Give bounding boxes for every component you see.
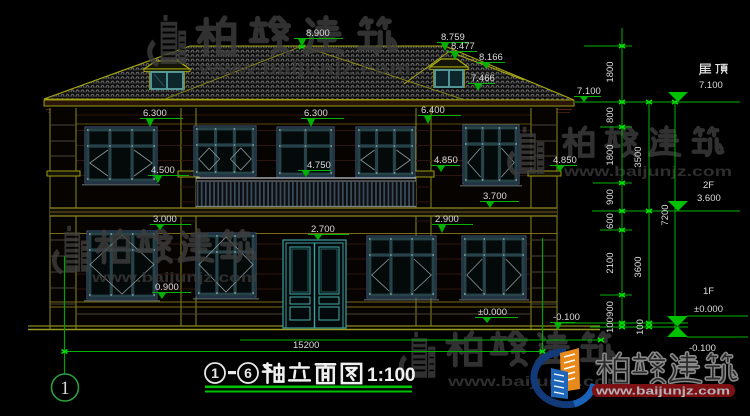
svg-text:8.477: 8.477 <box>451 41 475 52</box>
svg-text:2.700: 2.700 <box>311 224 335 235</box>
svg-text:900: 900 <box>605 189 616 205</box>
svg-text:800: 800 <box>605 107 616 123</box>
svg-text:±0.000: ±0.000 <box>478 307 507 318</box>
svg-text:0.900: 0.900 <box>155 282 179 293</box>
svg-text:3600: 3600 <box>633 256 644 277</box>
svg-text:7.100: 7.100 <box>699 80 723 91</box>
svg-text:2F: 2F <box>703 180 714 191</box>
svg-text:1: 1 <box>60 378 70 399</box>
svg-text:7.466: 7.466 <box>471 73 495 84</box>
svg-text:6.400: 6.400 <box>421 105 445 116</box>
svg-text:100: 100 <box>605 317 616 333</box>
svg-text:3.000: 3.000 <box>153 214 177 225</box>
svg-text:-0.100: -0.100 <box>553 312 580 323</box>
svg-text:6: 6 <box>244 365 252 381</box>
svg-text:15200: 15200 <box>293 340 319 351</box>
svg-text:4.500: 4.500 <box>151 165 175 176</box>
svg-text:3.700: 3.700 <box>483 191 507 202</box>
svg-text:8.166: 8.166 <box>479 52 503 63</box>
svg-text:1:100: 1:100 <box>367 365 416 386</box>
svg-text:4.850: 4.850 <box>553 155 577 166</box>
svg-text:1F: 1F <box>703 286 714 297</box>
svg-text:600: 600 <box>605 213 616 229</box>
svg-text:3500: 3500 <box>633 146 644 167</box>
svg-text:4.750: 4.750 <box>307 160 331 171</box>
svg-text:2100: 2100 <box>605 252 616 273</box>
svg-text:1800: 1800 <box>605 144 616 165</box>
svg-text:www.baijunjz.com: www.baijunjz.com <box>595 386 731 398</box>
svg-text:100: 100 <box>635 319 646 335</box>
svg-text:6.300: 6.300 <box>304 108 328 119</box>
svg-text:7200: 7200 <box>660 204 671 225</box>
svg-text:www.baijunjz.com: www.baijunjz.com <box>198 59 411 78</box>
svg-text:www.baijunjz.com: www.baijunjz.com <box>563 163 732 179</box>
svg-text:4.850: 4.850 <box>434 155 458 166</box>
svg-text:3.600: 3.600 <box>697 193 721 204</box>
svg-text:6.300: 6.300 <box>143 108 167 119</box>
svg-text:8.900: 8.900 <box>306 28 330 39</box>
svg-text:7.100: 7.100 <box>577 86 601 97</box>
svg-text:1: 1 <box>211 365 219 381</box>
svg-text:900: 900 <box>605 301 616 317</box>
svg-text:1800: 1800 <box>605 61 616 82</box>
svg-text:±0.000: ±0.000 <box>694 304 723 315</box>
svg-text:2.900: 2.900 <box>435 214 459 225</box>
